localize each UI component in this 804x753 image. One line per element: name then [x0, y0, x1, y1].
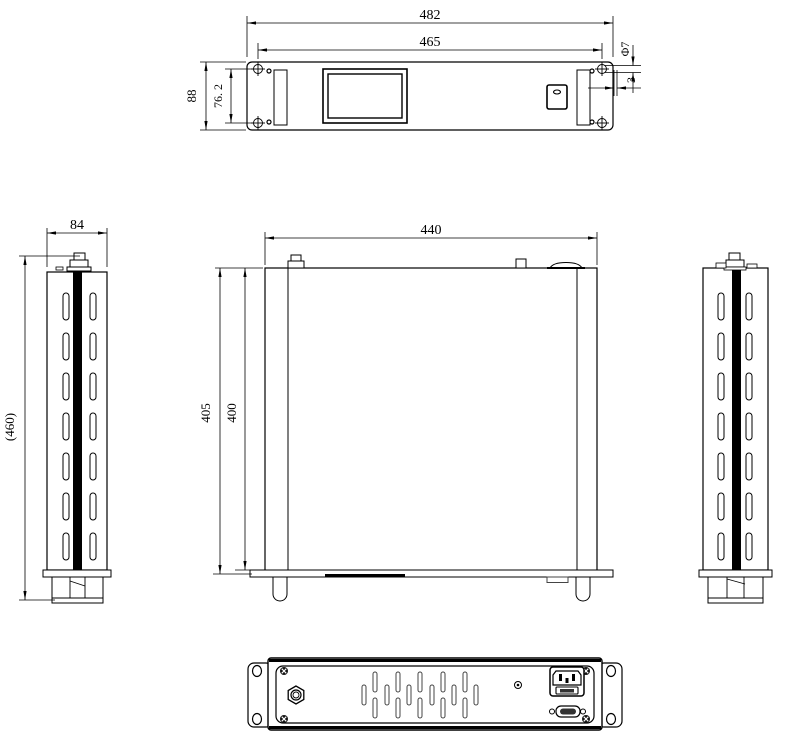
- dim-label: 84: [70, 218, 84, 233]
- top-connector-icon: [716, 253, 757, 270]
- switch-edge: [547, 577, 568, 583]
- front-view: 482 465 88 76. 2: [184, 8, 641, 130]
- panel-screw-icon: [280, 715, 288, 723]
- panel-screw-icon: [280, 667, 288, 675]
- side-stripe: [73, 272, 82, 570]
- power-switch[interactable]: [547, 85, 567, 109]
- display-edge: [325, 574, 405, 577]
- front-panel-edge: [250, 570, 613, 577]
- side-stripe: [732, 268, 741, 570]
- dim-label: 88: [184, 90, 199, 103]
- dim-top-width: 440: [265, 223, 597, 265]
- left-side-view: 84 (460): [2, 218, 111, 603]
- dim-label: Φ7: [618, 42, 632, 57]
- rf-connector-nut-icon: [288, 686, 304, 704]
- engineering-drawing-canvas: 482 465 88 76. 2: [0, 0, 804, 753]
- power-inlet-icon: [550, 667, 584, 696]
- rf-connector-icon: [288, 255, 304, 268]
- dim-label: 405: [198, 403, 213, 423]
- small-post: [516, 259, 526, 268]
- rear-view: [248, 658, 622, 730]
- dim-label: (460): [2, 413, 17, 441]
- dim-label: 482: [420, 8, 441, 23]
- top-view: 440 405 400: [198, 223, 613, 601]
- left-slot-cover: [274, 70, 287, 125]
- dim-label: 440: [421, 223, 442, 238]
- foot-assembly: [699, 570, 772, 603]
- chassis-body: [265, 268, 597, 571]
- right-side-view: [699, 253, 772, 603]
- dimension-drawing: 482 465 88 76. 2: [0, 0, 804, 753]
- dim-label: 400: [224, 403, 239, 423]
- dim-depth-body: 400: [224, 268, 255, 570]
- foot-assembly: [43, 570, 111, 603]
- dim-label: 465: [420, 35, 441, 50]
- display-window: [323, 69, 407, 123]
- front-foot: [273, 577, 287, 601]
- dome-cover: [547, 263, 585, 269]
- dim-label: 76. 2: [211, 84, 225, 108]
- front-foot: [576, 577, 590, 601]
- right-slot-cover: [577, 70, 590, 125]
- dim-front-mounting-width: 465: [258, 35, 602, 59]
- panel-screw-icon: [582, 715, 590, 723]
- dim-label: 3: [624, 77, 638, 83]
